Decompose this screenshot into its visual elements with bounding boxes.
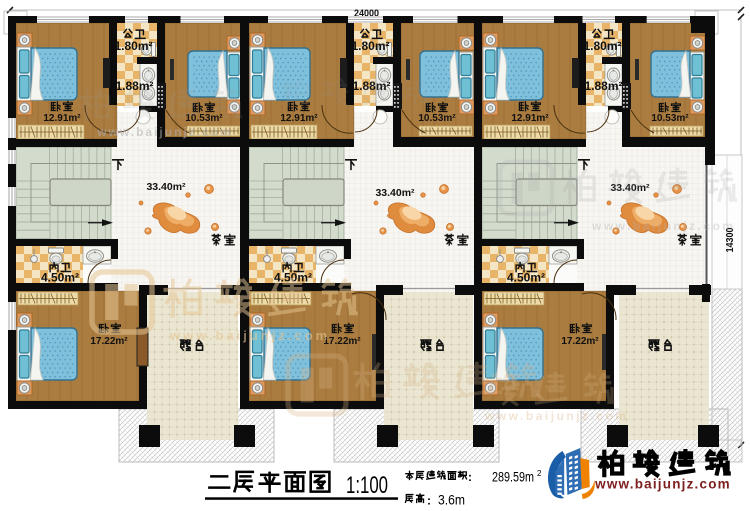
svg-text:17.22m²: 17.22m²: [561, 336, 599, 347]
svg-text:289.59m: 289.59m: [492, 469, 534, 485]
svg-text:3.6m: 3.6m: [438, 492, 465, 508]
svg-text:1.80m²: 1.80m²: [583, 39, 621, 53]
svg-text:17.22m²: 17.22m²: [90, 336, 128, 347]
svg-text:12.91m²: 12.91m²: [511, 113, 549, 124]
svg-text:www.baijunjz.com: www.baijunjz.com: [484, 409, 629, 423]
svg-text:www.baijunjz.com: www.baijunjz.com: [594, 477, 731, 492]
svg-text:www.baijunjz.com: www.baijunjz.com: [96, 125, 233, 139]
svg-text:1:100: 1:100: [346, 472, 388, 499]
svg-text:www.baijunjz.com: www.baijunjz.com: [591, 219, 736, 233]
svg-text:33.40m²: 33.40m²: [375, 187, 415, 199]
svg-text:10.53m²: 10.53m²: [418, 113, 456, 124]
svg-text:1.80m²: 1.80m²: [351, 39, 389, 53]
svg-text::: :: [468, 470, 472, 484]
svg-text:10.53m²: 10.53m²: [651, 113, 689, 124]
svg-text:4.50m²: 4.50m²: [507, 271, 545, 285]
svg-text:www.baijunjz.com: www.baijunjz.com: [169, 328, 330, 343]
svg-text:12.91m²: 12.91m²: [280, 113, 318, 124]
svg-text:1.80m²: 1.80m²: [114, 39, 152, 53]
svg-text:2: 2: [537, 469, 542, 478]
svg-text:4.50m²: 4.50m²: [41, 271, 79, 285]
svg-text:33.40m²: 33.40m²: [146, 181, 186, 193]
svg-text:12.91m²: 12.91m²: [43, 113, 81, 124]
svg-text:1.88m²: 1.88m²: [584, 79, 622, 93]
svg-text::: :: [427, 494, 431, 508]
